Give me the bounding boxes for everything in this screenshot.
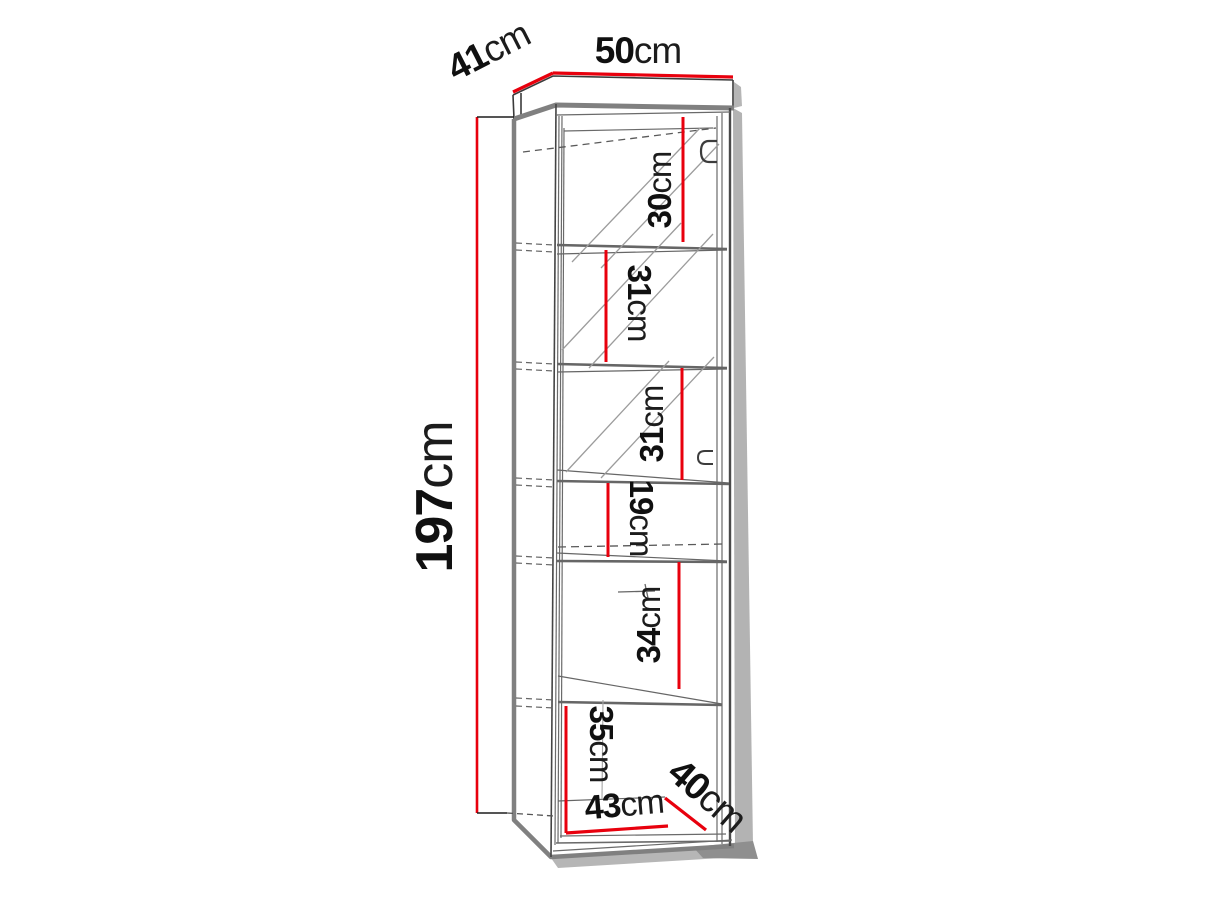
label-top-width: 50cm [595,30,681,71]
label-top-depth: 41cm [440,13,536,89]
label-compartment-3: 31cm [633,386,670,463]
label-compartment-2: 31cm [621,265,658,342]
label-compartment-1: 30cm [641,152,678,229]
door-handle-middle-icon [698,451,713,464]
hidden-top-edge [523,128,716,152]
label-compartment-6: 35cm [583,706,620,783]
label-compartment-4: 19cm [623,480,660,557]
door-handle-top-icon [701,141,717,162]
dimension-line-top-depth [513,73,553,92]
cabinet-diagram-canvas: 50cm 41cm 197cm 30cm 31cm 31cm 19cm 34cm… [0,0,1214,910]
label-compartment-5: 34cm [630,587,667,664]
label-height: 197cm [406,421,464,572]
label-interior-width: 43cm [583,783,665,828]
dimension-line-interior-width [566,826,668,833]
furniture-dimension-diagram: 50cm 41cm 197cm 30cm 31cm 31cm 19cm 34cm… [0,0,1214,910]
